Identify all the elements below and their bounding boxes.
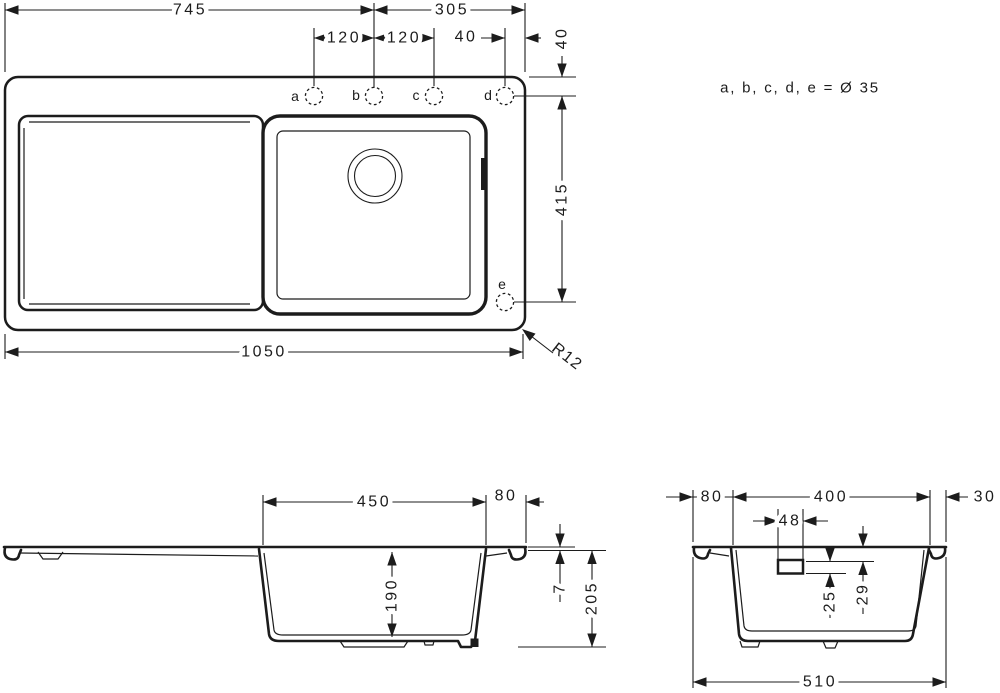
front-dimension-lines [263,502,592,647]
hole-label-d: d [484,87,492,103]
hole-e [496,293,513,310]
dim-305: 305 [435,2,469,19]
hole-label-a: a [291,88,299,104]
front-arrows [263,497,597,647]
side-extension-lines [693,490,946,688]
dim-510: 510 [803,674,837,691]
side-left-lip [694,548,710,559]
dim-40-horizontal: 40 [455,29,478,46]
bowl-plan [263,116,486,314]
dim-400: 400 [814,489,848,506]
front-right-lip [509,548,525,560]
dim-25: 25 [822,590,839,613]
dim-190: 190 [384,578,401,612]
dim-120-ab: 120 [327,30,361,47]
hole-c [425,87,442,104]
sink-dimension-drawing: a b c d e 745 305 120 120 40 40 415 1050… [0,0,1000,693]
dim-120-bc: 120 [387,30,421,47]
hole-d [496,87,513,104]
front-section-view: 450 80 190 7 205 [4,488,606,648]
side-profile [693,547,946,648]
dim-450: 450 [357,494,391,511]
dim-7: 7 [552,582,569,593]
front-left-lip [5,548,21,560]
side-right-lip [929,548,945,559]
side-dimension-lines [666,497,968,682]
dim-29: 29 [855,583,872,606]
front-extension-lines [263,495,606,647]
hole-b [365,87,382,104]
hole-a [305,87,322,104]
side-section-view: 80 400 30 48 29 25 510 [666,489,996,691]
overflow-slot [481,158,486,190]
holes-diameter-note: a, b, c, d, e = Ø 35 [720,80,880,97]
front-bowl-inner [264,553,481,635]
dim-745: 745 [173,2,207,19]
drainboard-plan [19,116,263,310]
front-profile [4,547,526,647]
front-bowl-outer [259,549,486,647]
dim-48: 48 [779,513,802,530]
hole-label-c: c [413,87,420,103]
dim-40-vertical: 40 [554,27,571,50]
dim-80-side: 80 [701,489,724,506]
dim-205: 205 [584,581,601,615]
dim-80-front: 80 [495,488,518,505]
hole-label-b: b [352,87,360,103]
hole-label-e: e [498,276,506,292]
plan-view: a b c d e 745 305 120 120 40 40 415 1050… [5,2,586,375]
tap-hole-section [778,560,803,574]
technical-drawing-page: a b c d e 745 305 120 120 40 40 415 1050… [0,0,1000,693]
dim-30: 30 [974,489,997,506]
dim-1050: 1050 [241,344,287,361]
dim-r12: R12 [548,340,585,374]
dim-415: 415 [554,182,571,216]
front-outlet-stub [471,639,479,648]
